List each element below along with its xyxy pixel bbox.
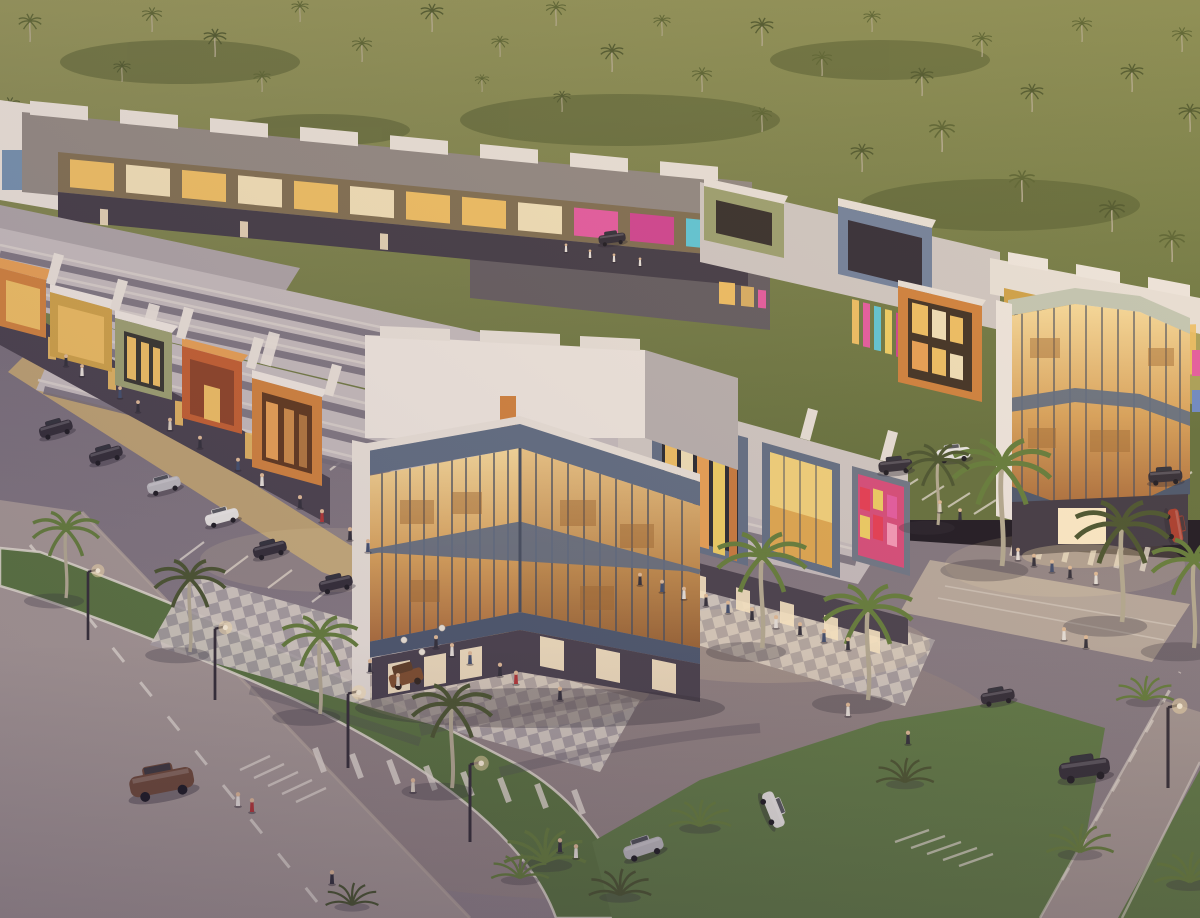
vignette [0,0,1200,918]
architectural-rendering [0,0,1200,918]
plaza-rendering-canvas [0,0,1200,918]
